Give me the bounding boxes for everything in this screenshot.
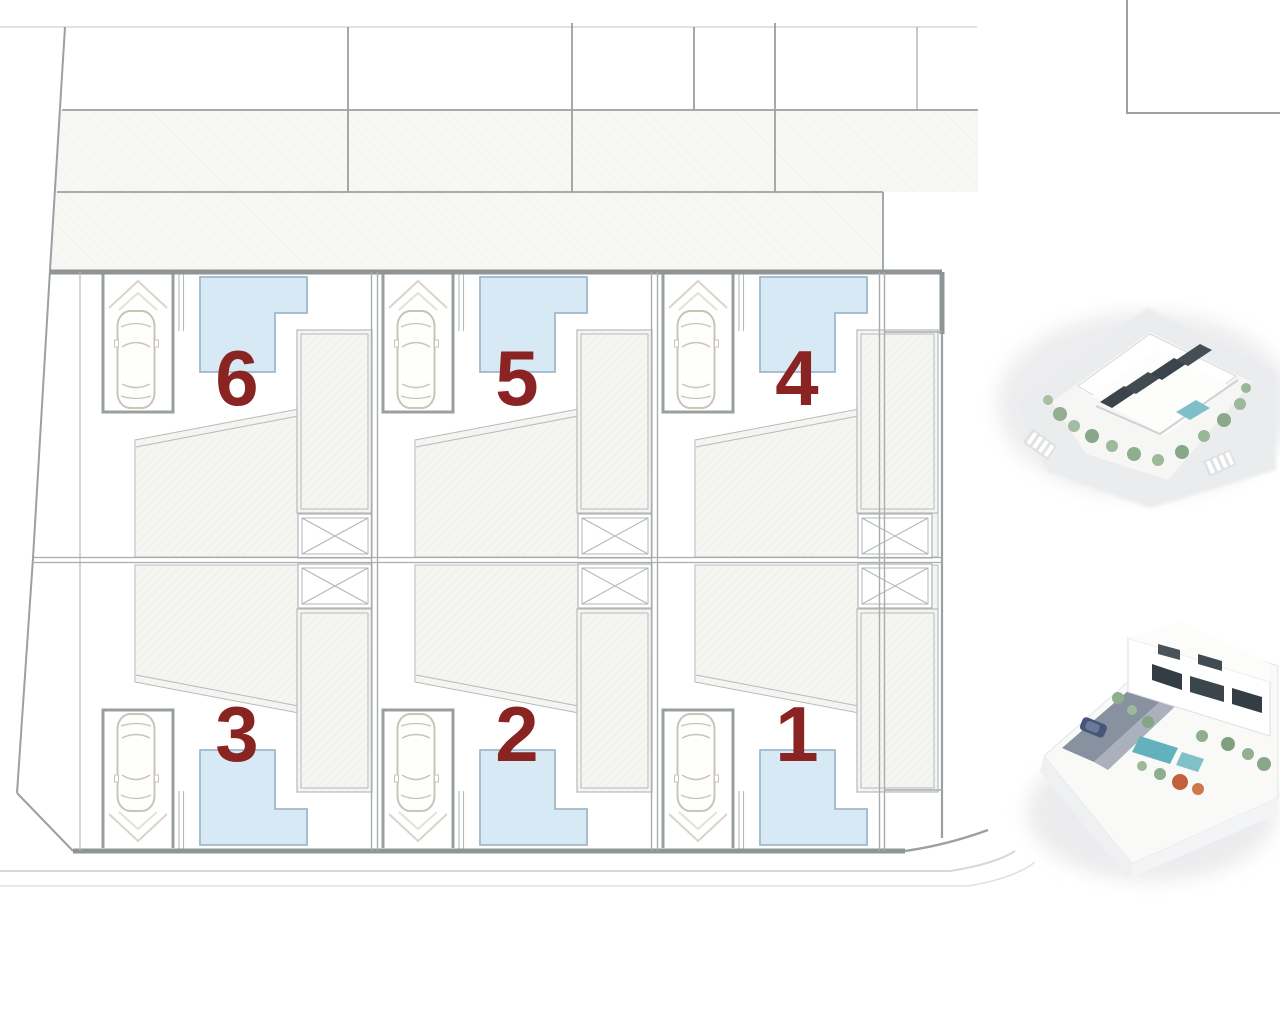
car-icon bbox=[675, 311, 719, 408]
site-plan-page: 654321 bbox=[0, 0, 1280, 1024]
unit-number: 5 bbox=[495, 334, 538, 422]
car-icon bbox=[115, 714, 159, 811]
unit-number: 4 bbox=[775, 334, 818, 422]
unit-number: 1 bbox=[775, 690, 818, 778]
plot-boundary-corner-cut bbox=[17, 793, 73, 851]
plot-boundary-left bbox=[17, 27, 65, 793]
roof-terrace bbox=[857, 609, 938, 792]
roof-terrace bbox=[577, 330, 652, 513]
site-plan-svg: 654321 bbox=[0, 0, 1280, 1024]
building-wall-bottom-curve bbox=[905, 830, 988, 851]
unit-plot-2: 2 bbox=[383, 564, 652, 849]
unit-plot-1: 1 bbox=[663, 564, 938, 849]
unit-number: 6 bbox=[215, 334, 258, 422]
car-icon bbox=[395, 714, 439, 811]
units-layer: 654321 bbox=[103, 273, 938, 849]
orange-shrub bbox=[1172, 774, 1188, 790]
unit-number: 2 bbox=[495, 690, 538, 778]
unit-number: 3 bbox=[215, 690, 258, 778]
roof-terrace bbox=[297, 609, 372, 792]
car-icon bbox=[395, 311, 439, 408]
unit-plot-6: 6 bbox=[103, 273, 372, 558]
car-icon bbox=[675, 714, 719, 811]
street-hatch-area bbox=[51, 110, 978, 272]
roof-terrace bbox=[297, 330, 372, 513]
aerial-3d-render bbox=[997, 308, 1280, 508]
roof-terrace bbox=[577, 609, 652, 792]
unit-plot-4: 4 bbox=[663, 273, 938, 558]
car-icon bbox=[115, 311, 159, 408]
street-level-3d-render bbox=[1027, 622, 1278, 881]
roof-terrace bbox=[857, 330, 938, 513]
street-and-boundary bbox=[51, 110, 978, 272]
street-edge-bottom-2 bbox=[0, 862, 1035, 886]
unit-plot-3: 3 bbox=[103, 564, 372, 849]
street-edge-bottom-1 bbox=[0, 851, 1015, 871]
unit-plot-5: 5 bbox=[383, 273, 652, 558]
neighbor-plot-corner bbox=[1127, 0, 1280, 113]
